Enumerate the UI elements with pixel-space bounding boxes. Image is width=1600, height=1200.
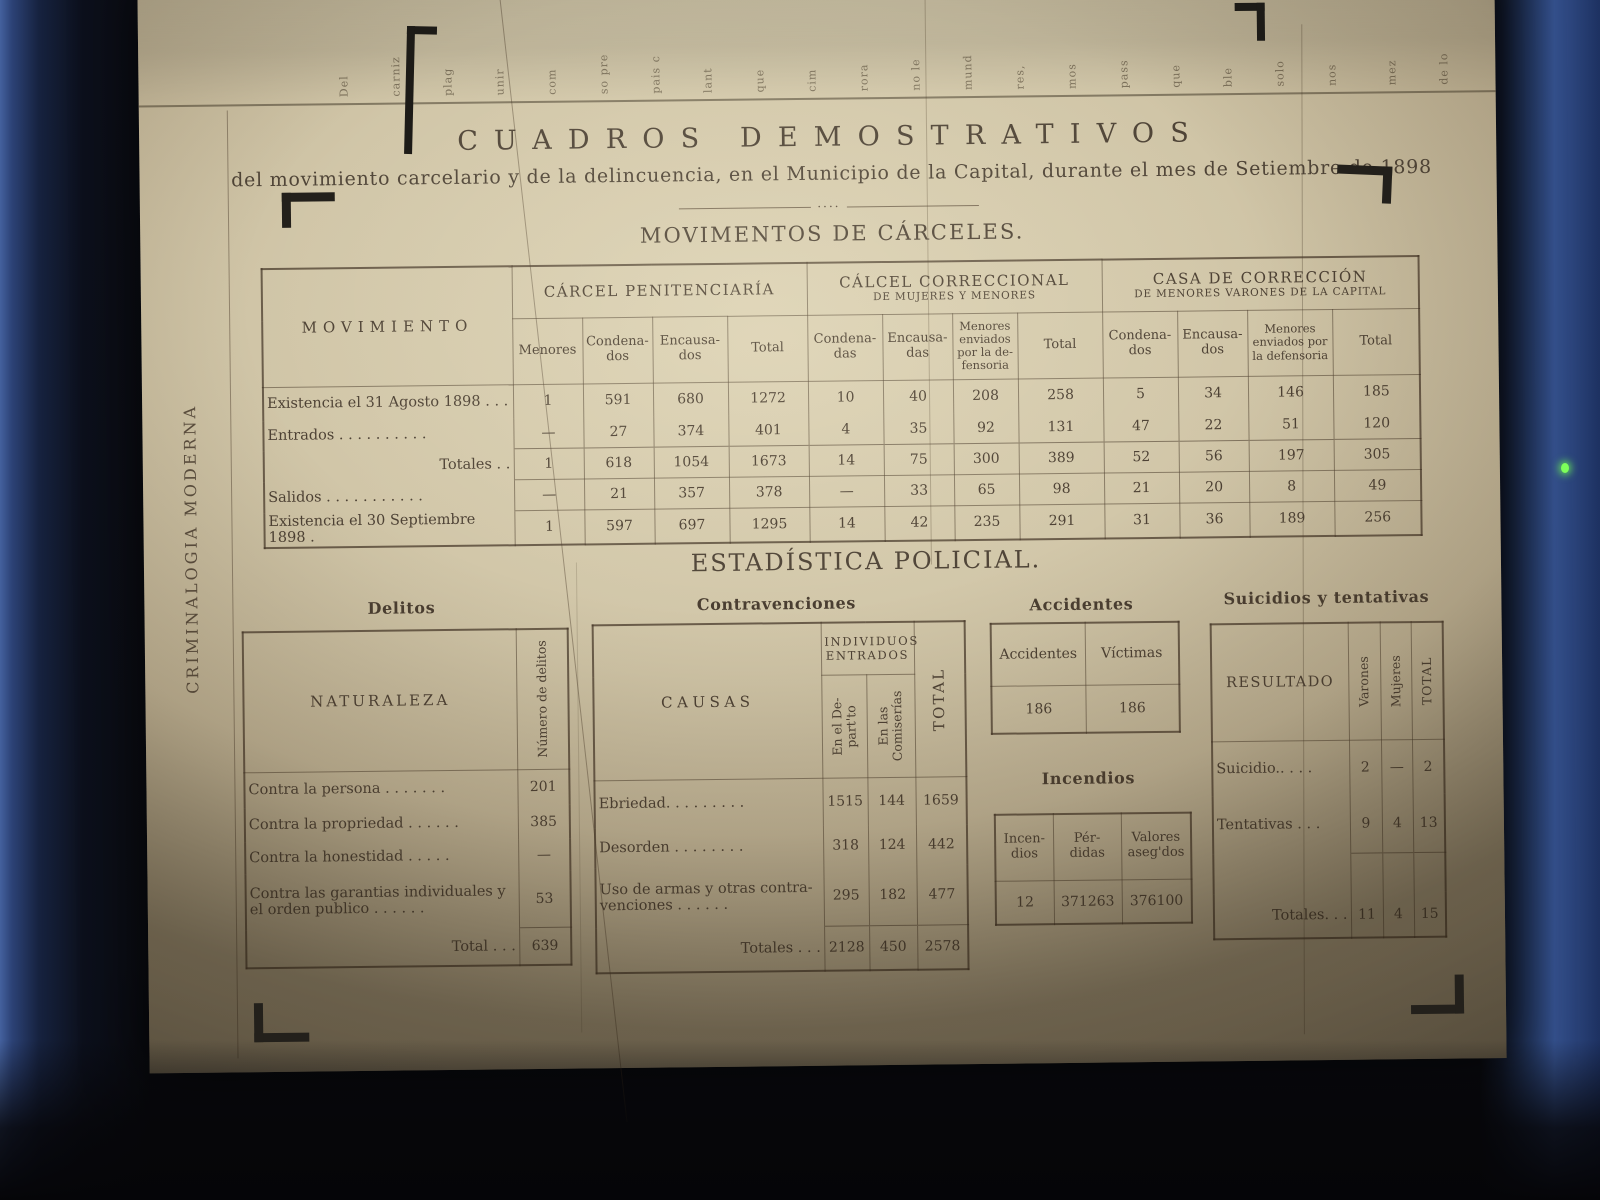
crop-mark-bottom-left <box>254 1003 309 1043</box>
row-label-total: Total . . . <box>246 927 519 968</box>
table-cell: 49 <box>1334 469 1421 501</box>
rotated-header-text: En las Comiserías <box>876 679 906 771</box>
row-label: Contra la propriedad . . . . . . <box>245 805 518 842</box>
spacer-cell <box>1350 852 1382 892</box>
label-incendios: Incendios <box>1003 768 1173 789</box>
crop-mark-top-partial <box>404 26 437 155</box>
table-cell: 1673 <box>729 445 809 477</box>
table-cell: 5 <box>1103 377 1178 412</box>
photo-bottom-shadow <box>0 1040 1600 1200</box>
rotated-header-text: TOTAL <box>930 634 949 764</box>
table-cell: 4 <box>808 414 883 445</box>
table-cell: 208 <box>953 379 1018 414</box>
table-cell: 1 <box>514 509 584 545</box>
edge-text-fragment: unir <box>493 68 506 95</box>
table-cell: 1295 <box>729 507 809 543</box>
table-cell: 14 <box>809 506 884 542</box>
column-header-movimiento: MOVIMIENTO <box>262 266 513 387</box>
table-cell: 53 <box>518 871 571 928</box>
table-cell: — <box>1381 739 1413 794</box>
table-cell: 47 <box>1103 411 1178 442</box>
table-cell: 295 <box>823 865 869 926</box>
table-cell: 442 <box>916 824 967 865</box>
rotated-header-text: En el De-part'to <box>829 680 859 772</box>
spacer-cell <box>1413 852 1445 892</box>
table-cell: 186 <box>1085 684 1180 733</box>
table-cell: 10 <box>808 380 883 415</box>
edge-text-fragment: que <box>753 69 766 93</box>
table-cell: 40 <box>883 379 953 414</box>
rotated-header-text: TOTAL <box>1419 628 1435 733</box>
table-cell: 12 <box>996 880 1054 925</box>
table-cell-total: 450 <box>869 925 918 971</box>
edge-text-fragment: com <box>545 68 558 94</box>
row-label: Ebriedad. . . . . . . . . <box>594 778 823 829</box>
edge-text-fragment: cim <box>805 69 818 92</box>
table-cell: 1 <box>513 383 583 418</box>
column-header: Menores <box>512 317 583 384</box>
edge-text-fragment: mez <box>1385 59 1398 85</box>
table-cell: 20 <box>1179 471 1249 503</box>
column-header: Menores enviados por la de-fensoria <box>952 313 1018 380</box>
table-cell: 124 <box>868 825 916 866</box>
table-cell: 189 <box>1249 501 1334 537</box>
column-header-resultado: RESULTADO <box>1211 623 1349 742</box>
column-header: Encausa-dos <box>652 316 728 383</box>
table-cell: 182 <box>868 865 917 926</box>
table-cell-total: 2128 <box>824 925 870 971</box>
table-cell: — <box>518 839 570 872</box>
table-cell-total: 15 <box>1414 892 1447 937</box>
table-cell: — <box>809 475 884 507</box>
group-header-correccional: CÁLCEL CORRECCIONAL DE MUJERES Y MENORES <box>807 260 1103 315</box>
edge-text-fragment: lant <box>701 67 714 93</box>
edge-text-fragment: de lo <box>1437 52 1450 84</box>
margin-vertical-title: CRIMINALOGIA MODERNA <box>167 399 214 699</box>
row-label: Contra las garantias individuales y el o… <box>245 871 519 930</box>
edge-text-fragment: plag <box>441 68 454 96</box>
crop-mark-top-partial <box>1235 3 1265 41</box>
table-cell: 680 <box>653 382 728 417</box>
edge-text-fragment: Del <box>337 75 350 97</box>
column-header: Total <box>1332 308 1420 375</box>
row-label-total: Totales . . . <box>596 926 824 974</box>
row-label: Tentativas . . . <box>1213 795 1351 855</box>
table-cell: — <box>513 417 583 448</box>
table-cell: 131 <box>1018 412 1103 443</box>
column-header: Encausa-dos <box>1177 310 1248 377</box>
table-cell: 14 <box>809 444 884 476</box>
table-cell: 144 <box>867 777 916 826</box>
column-header-mujeres: Mujeres <box>1380 622 1412 739</box>
table-cell: 201 <box>517 769 569 806</box>
table-cell: 75 <box>884 443 954 475</box>
table-cell: 146 <box>1248 375 1333 410</box>
edge-text-fragment: res, <box>1013 64 1026 89</box>
edge-text-fragment: no le <box>909 58 922 90</box>
column-header-numero-delitos: Número de delitos <box>516 629 570 770</box>
edge-text-fragment: pass <box>1117 59 1130 88</box>
suicidios-table: RESULTADO Varones Mujeres TOTAL Suicidio… <box>1210 621 1448 941</box>
rotated-header-text: Varones <box>1357 629 1373 734</box>
table-cell: 65 <box>954 474 1019 506</box>
group-title: CASA DE CORRECCIÓN <box>1153 268 1368 288</box>
edge-text-fragment: so pre <box>597 54 610 95</box>
table-cell-total: 639 <box>519 927 571 966</box>
table-cell: 389 <box>1019 442 1104 474</box>
column-header: Total <box>727 315 808 382</box>
column-header: Total <box>1017 312 1103 379</box>
edge-text-fragment: carniz <box>389 56 402 97</box>
column-header: Encausa-das <box>882 313 953 380</box>
table-cell: 477 <box>916 864 968 925</box>
table-cell: 36 <box>1179 502 1249 538</box>
edge-text-fragment: nos <box>1325 64 1338 87</box>
table-cell: 185 <box>1333 374 1420 409</box>
table-cell: 9 <box>1350 794 1383 852</box>
label-accidentes: Accidentes <box>991 594 1171 615</box>
column-header: Pér-didas <box>1053 813 1122 880</box>
row-label: Totales . . <box>264 448 514 482</box>
table-cell: 186 <box>991 685 1086 734</box>
table-cell: 374 <box>653 416 728 447</box>
tilted-page-wrapper: Del carniz plag unir com so pre pais c l… <box>0 0 1600 1200</box>
row-label: Uso de armas y otras contra-venciones . … <box>595 866 824 929</box>
carceles-table: MOVIMIENTO CÁRCEL PENITENCIARÍA CÁLCEL C… <box>261 255 1423 549</box>
spacer-cell <box>1382 852 1413 892</box>
label-delitos: Delitos <box>311 598 491 619</box>
table-cell: 1659 <box>915 776 967 825</box>
table-cell: 35 <box>883 413 953 444</box>
table-cell: 291 <box>1019 504 1104 540</box>
column-header-varones: Varones <box>1348 622 1381 739</box>
crop-mark-top-left <box>282 192 335 228</box>
table-cell: 300 <box>954 443 1019 475</box>
table-cell: 597 <box>584 509 654 545</box>
table-cell: 318 <box>823 825 868 866</box>
row-label: Existencia el 30 Septiembre 1898 . <box>264 510 514 548</box>
column-header-comisarias: En las Comiserías <box>866 674 915 778</box>
column-header: Víctimas <box>1085 622 1180 685</box>
label-suicidios: Suicidios y tentativas <box>1206 587 1446 609</box>
table-cell: 1272 <box>728 381 808 416</box>
accidentes-table: Accidentes Víctimas 186 186 <box>990 621 1181 735</box>
row-label-total: Totales. . . <box>1214 893 1352 940</box>
rotated-header-text: Número de delitos <box>534 635 550 763</box>
column-header: Accidentes <box>991 623 1086 686</box>
table-cell: 51 <box>1248 409 1333 440</box>
group-header-casa-correccion: CASA DE CORRECCIÓN DE MENORES VARONES DE… <box>1102 256 1420 312</box>
divider-line <box>679 206 811 209</box>
table-cell: 376100 <box>1122 879 1192 924</box>
table-cell: 21 <box>1104 472 1179 504</box>
table-cell: 385 <box>518 805 570 840</box>
group-header-individuos: INDIVIDUOS ENTRADOS <box>821 622 915 675</box>
table-cell: 235 <box>954 505 1019 541</box>
table-cell-total: 2578 <box>917 924 969 970</box>
row-label: Salidos . . . . . . . . . . . <box>264 479 514 513</box>
column-header: Condena-das <box>807 314 883 381</box>
table-cell: 52 <box>1104 441 1179 473</box>
table-cell: 56 <box>1179 440 1249 472</box>
table-cell: — <box>514 478 584 510</box>
table-cell: 13 <box>1413 794 1446 852</box>
group-subtitle: DE MENORES VARONES DE LA CAPITAL <box>1105 285 1415 301</box>
table-cell: 31 <box>1104 503 1179 539</box>
table-cell: 4 <box>1382 794 1414 852</box>
table-cell: 2 <box>1349 739 1382 794</box>
table-cell: 401 <box>728 415 808 446</box>
column-header: Menores enviados por la defensoria <box>1247 309 1333 376</box>
edge-text-fragment: ble <box>1221 67 1234 87</box>
row-label: Entrados . . . . . . . . . . <box>263 418 513 451</box>
table-cell: 34 <box>1178 376 1248 411</box>
table-cell: 22 <box>1178 410 1248 441</box>
table-cell: 1 <box>514 447 584 479</box>
table-cell: 120 <box>1333 408 1420 439</box>
edge-text-fragment: mund <box>961 54 974 90</box>
delitos-table: NATURALEZA Número de delitos Contra la p… <box>242 628 573 970</box>
edge-text-fragment: que <box>1169 64 1182 88</box>
table-cell: 2 <box>1412 739 1445 794</box>
column-header-total: TOTAL <box>1411 622 1444 739</box>
crop-mark-top-right <box>1336 164 1392 203</box>
spacer-cell <box>1213 853 1350 895</box>
table-cell: 197 <box>1249 439 1334 471</box>
photo-of-document: Del carniz plag unir com so pre pais c l… <box>0 0 1600 1200</box>
row-label: Suicidio.. . . . <box>1212 740 1350 797</box>
group-header-penitenciaria: CÁRCEL PENITENCIARÍA <box>512 263 808 318</box>
edge-text-fragment: solo <box>1273 60 1286 87</box>
table-cell: 378 <box>729 476 809 508</box>
column-header-causas: CAUSAS <box>593 623 823 781</box>
table-cell: 92 <box>953 413 1018 444</box>
edge-text-fragment: mos <box>1065 63 1078 89</box>
column-header-naturaleza: NATURALEZA <box>243 629 518 772</box>
table-cell: 618 <box>584 447 654 479</box>
table-cell: 27 <box>583 417 653 448</box>
incendios-table: Incen-dios Pér-didas Valores aseg'dos 12… <box>994 812 1193 926</box>
divider-dots: ···· <box>811 203 846 209</box>
column-header: Incen-dios <box>995 814 1054 881</box>
edge-text-fragment: rora <box>857 63 870 91</box>
label-contravenciones: Contravenciones <box>661 593 891 615</box>
table-cell: 42 <box>884 505 954 541</box>
crop-mark-bottom-right <box>1411 975 1464 1015</box>
table-cell: 371263 <box>1054 879 1122 924</box>
rotated-header-text: Mujeres <box>1388 628 1404 733</box>
table-cell: 1515 <box>822 777 868 826</box>
green-indicator-dot <box>1561 463 1569 473</box>
column-header: Condena-dos <box>1102 311 1178 378</box>
row-label: Desorden . . . . . . . . <box>595 826 823 869</box>
table-cell: 357 <box>654 477 729 509</box>
table-cell-total: 4 <box>1383 892 1415 937</box>
row-label: Contra la persona . . . . . . . <box>244 769 517 808</box>
row-label: Contra la honestidad . . . . . <box>245 839 518 874</box>
column-header: Valores aseg'dos <box>1121 813 1192 880</box>
column-header-departamento: En el De-part'to <box>821 674 867 778</box>
contravenciones-table: CAUSAS INDIVIDUOS ENTRADOS TOTAL En el D… <box>592 620 970 974</box>
table-cell: 33 <box>884 474 954 506</box>
divider-line <box>847 204 979 207</box>
table-cell: 98 <box>1019 473 1104 505</box>
table-cell: 258 <box>1018 378 1103 413</box>
row-label: Existencia el 31 Agosto 1898 . . . <box>263 384 513 421</box>
edge-text-fragment: pais c <box>649 55 662 94</box>
table-cell: 8 <box>1249 470 1334 502</box>
table-cell-total: 11 <box>1351 892 1384 937</box>
column-header-total: TOTAL <box>914 621 967 777</box>
table-cell: 697 <box>654 508 729 544</box>
table-cell: 591 <box>583 383 653 418</box>
table-cell: 256 <box>1334 500 1421 536</box>
table-cell: 305 <box>1334 438 1421 470</box>
table-cell: 1054 <box>654 446 729 478</box>
margin-vertical-title-text: CRIMINALOGIA MODERNA <box>180 404 202 694</box>
column-header: Condena-dos <box>582 317 653 384</box>
table-cell: 21 <box>584 478 654 510</box>
